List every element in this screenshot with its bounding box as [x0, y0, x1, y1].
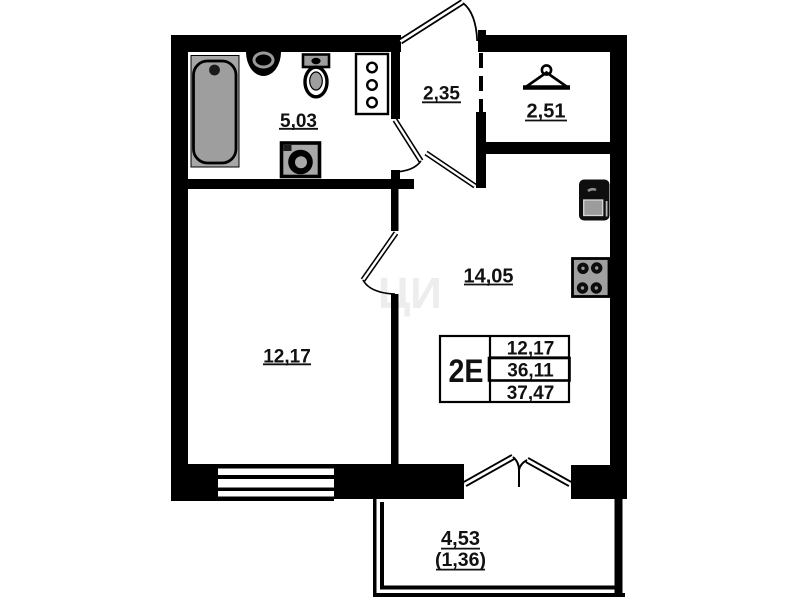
- svg-text:(1,36): (1,36): [435, 549, 486, 571]
- svg-text:2E: 2E: [449, 353, 484, 389]
- svg-text:12,17: 12,17: [507, 339, 555, 360]
- svg-text:36,11: 36,11: [507, 361, 554, 382]
- svg-text:4,53: 4,53: [441, 528, 480, 550]
- svg-text:2,51: 2,51: [527, 101, 566, 123]
- svg-text:37,47: 37,47: [507, 383, 555, 404]
- svg-text:2,35: 2,35: [423, 84, 460, 105]
